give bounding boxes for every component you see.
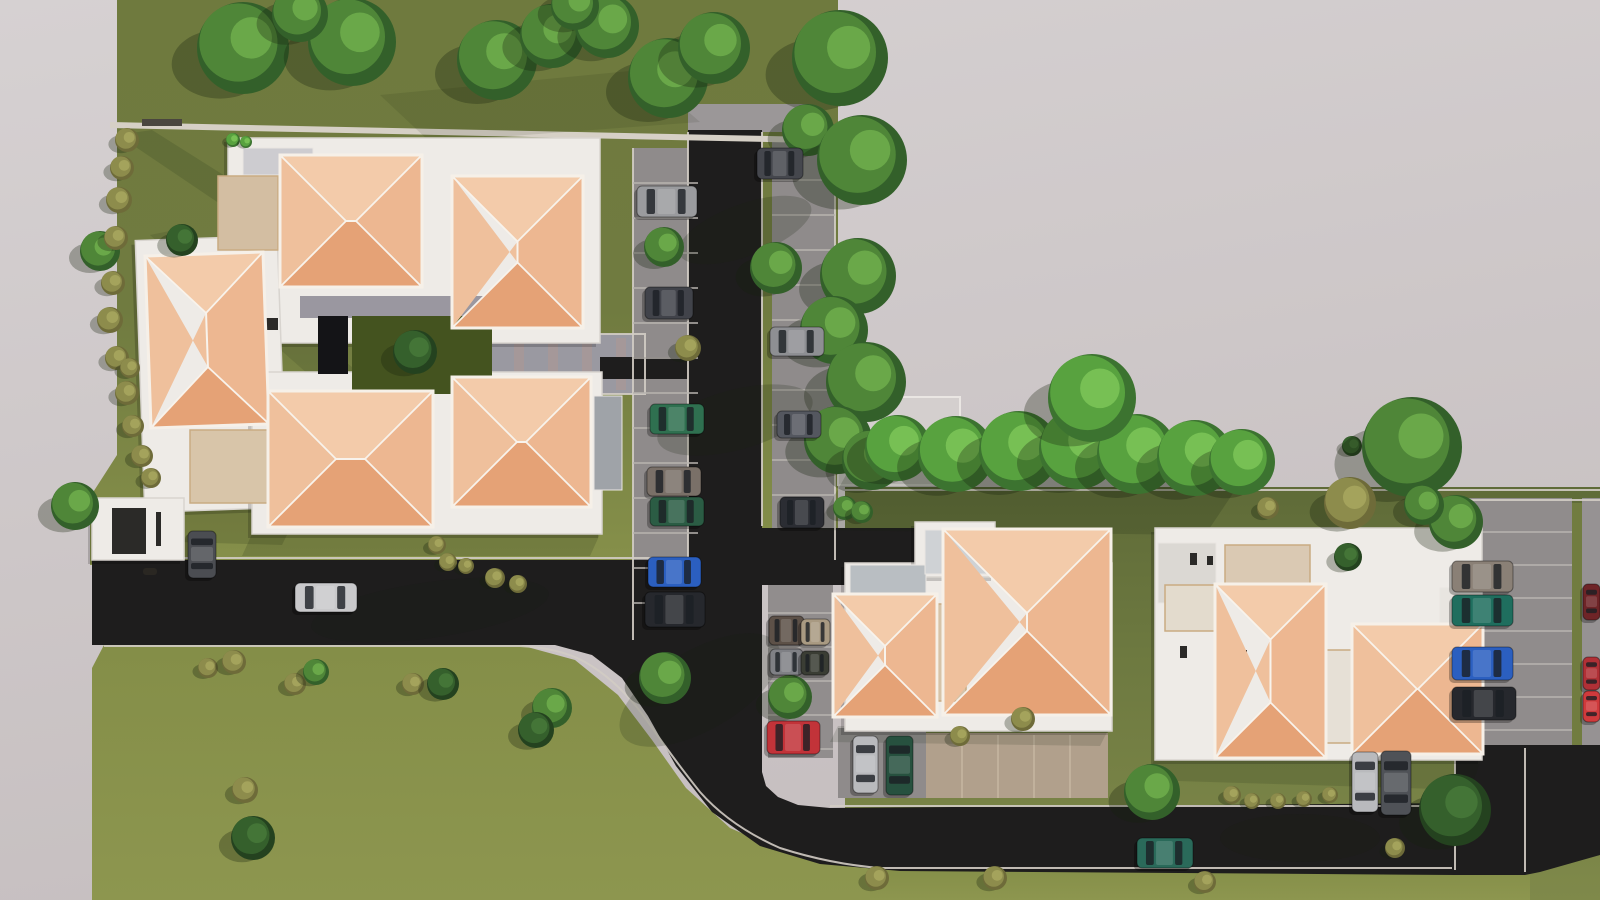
site-plan-render (0, 0, 1600, 900)
car-roof (665, 470, 681, 493)
windshield (1586, 696, 1597, 700)
canopy-highlight (435, 539, 443, 547)
canopy-highlight (598, 5, 627, 34)
car-roof (1586, 668, 1597, 678)
windshield (653, 290, 660, 316)
windshield (775, 652, 780, 672)
canopy-highlight (547, 695, 565, 713)
building-opening (112, 508, 146, 554)
canopy-highlight (704, 24, 736, 56)
car (642, 592, 705, 630)
car-roof (781, 652, 791, 672)
canopy-highlight (516, 578, 524, 586)
rear-window (1493, 598, 1501, 623)
building-opening (1207, 556, 1213, 565)
canopy-highlight (114, 350, 125, 361)
canopy-highlight (1233, 440, 1263, 470)
canopy-highlight (113, 230, 124, 241)
car (798, 619, 830, 648)
small-animal (143, 568, 157, 575)
rear-window (803, 724, 810, 751)
stairwell (318, 316, 348, 374)
canopy-highlight (130, 419, 140, 429)
windshield (305, 586, 314, 609)
rear-window (1493, 650, 1501, 677)
canopy-highlight (439, 673, 453, 687)
canopy-highlight (127, 361, 136, 370)
canopy-highlight (850, 130, 891, 171)
car (1449, 595, 1513, 629)
canopy-highlight (69, 490, 91, 512)
windshield (1462, 598, 1471, 623)
southeast-corner (1525, 745, 1600, 875)
car (1580, 657, 1600, 693)
car (754, 148, 803, 182)
windshield (659, 407, 667, 431)
canopy-highlight (874, 870, 885, 881)
windshield (656, 560, 663, 584)
canopy-highlight (827, 26, 870, 69)
rear-window (856, 775, 875, 782)
car (798, 651, 829, 678)
windshield (787, 500, 793, 525)
rear-window (684, 470, 691, 493)
car-roof (316, 586, 335, 609)
rear-window (687, 500, 694, 523)
car (1349, 752, 1378, 815)
terrace (190, 430, 270, 503)
canopy-highlight (446, 556, 454, 564)
rear-window (792, 652, 796, 672)
windshield (1586, 590, 1597, 595)
car-roof (1156, 841, 1173, 865)
canopy-highlight (801, 113, 824, 136)
canopy-highlight (848, 251, 882, 285)
canopy-highlight (859, 505, 869, 515)
terrace (218, 176, 278, 250)
canopy-highlight (231, 654, 242, 665)
windshield (1384, 761, 1408, 770)
car (1580, 691, 1600, 725)
walkway-gate (142, 119, 182, 126)
roof-se (452, 377, 591, 507)
windshield (856, 745, 875, 753)
rear-window (810, 500, 816, 525)
canopy-highlight (1250, 796, 1257, 803)
car (764, 721, 820, 757)
car-roof (668, 407, 684, 431)
canopy-highlight (1144, 773, 1169, 798)
windshield (806, 622, 810, 642)
rear-window (1586, 712, 1597, 716)
rear-window (1355, 793, 1375, 801)
canopy-highlight (231, 135, 237, 141)
rear-window (678, 189, 686, 214)
windshield (889, 745, 910, 753)
windshield (1462, 650, 1471, 677)
car-roof (1474, 690, 1493, 717)
car-roof (665, 595, 683, 624)
canopy-highlight (124, 385, 135, 396)
windshield (764, 151, 770, 176)
car-roof (1384, 773, 1408, 792)
windshield (659, 500, 667, 523)
roof-s (268, 391, 433, 527)
car-roof (1355, 772, 1375, 790)
canopy-highlight (139, 449, 149, 459)
canopy-highlight (825, 307, 856, 338)
rendered-site-plan-screenshot (0, 0, 1600, 900)
windshield (647, 189, 655, 214)
canopy-highlight (178, 229, 192, 243)
canopy-highlight (312, 663, 324, 675)
rear-window (820, 654, 824, 672)
car (850, 736, 878, 796)
canopy-highlight (119, 160, 130, 171)
canopy-highlight (1328, 790, 1335, 797)
canopy-highlight (410, 677, 420, 687)
canopy-highlight (124, 132, 135, 143)
car-roof (773, 151, 787, 176)
windshield (775, 724, 782, 751)
car-roof (856, 755, 875, 772)
car-roof (1473, 564, 1491, 589)
rear-window (687, 407, 694, 431)
rear-window (191, 563, 213, 569)
car-roof (1473, 598, 1491, 623)
canopy-highlight (658, 661, 681, 684)
canopy-highlight (855, 355, 891, 391)
rear-window (1175, 841, 1182, 865)
car (185, 531, 216, 581)
windshield (1462, 690, 1471, 717)
canopy-highlight (340, 13, 380, 53)
car-roof (795, 500, 808, 525)
canopy-highlight (205, 661, 214, 670)
car-roof (1473, 650, 1491, 677)
rear-window (1493, 564, 1501, 589)
canopy-highlight (659, 234, 677, 252)
canopy-highlight (409, 337, 429, 357)
rear-window (686, 595, 694, 624)
car (883, 736, 913, 798)
car (634, 186, 697, 220)
car-roof (788, 330, 804, 353)
car-roof (781, 619, 792, 642)
car (774, 411, 821, 441)
car (767, 327, 824, 359)
building-opening (1180, 646, 1187, 658)
car-roof (1586, 596, 1597, 607)
canopy-highlight (992, 870, 1003, 881)
canopy-highlight (684, 339, 696, 351)
canopy-highlight (1445, 786, 1477, 818)
canopy-highlight (148, 471, 157, 480)
rear-window (1496, 690, 1504, 717)
canopy-highlight (769, 251, 792, 274)
canopy-highlight (957, 729, 966, 738)
windshield (1146, 841, 1154, 865)
rear-window (788, 151, 794, 176)
car (292, 583, 357, 615)
car (642, 287, 693, 322)
rear-window (1586, 679, 1597, 683)
canopy-highlight (1202, 875, 1212, 885)
car (647, 404, 704, 437)
rear-window (821, 622, 825, 642)
rear-window (1384, 795, 1408, 803)
canopy-highlight (1449, 504, 1473, 528)
car (644, 467, 701, 499)
rear-window (684, 560, 691, 584)
flat-roof (594, 396, 622, 490)
canopy-highlight (241, 781, 253, 793)
windshield (805, 654, 809, 672)
windshield (1586, 662, 1597, 667)
car (1580, 584, 1600, 623)
roof-nw (280, 155, 422, 287)
canopy-highlight (1302, 794, 1309, 801)
car-roof (792, 414, 805, 435)
canopy-highlight (1344, 548, 1357, 561)
car-roof (666, 560, 682, 584)
car-roof (668, 500, 684, 523)
canopy-highlight (1230, 789, 1238, 797)
car (1449, 687, 1516, 723)
canopy-highlight (1080, 369, 1120, 409)
car-roof (657, 189, 675, 214)
rear-window (678, 290, 684, 316)
canopy-highlight (784, 682, 804, 702)
car-roof (889, 756, 910, 774)
windshield (655, 595, 663, 624)
canopy-highlight (1276, 796, 1283, 803)
canopy-highlight (110, 275, 121, 286)
windshield (1355, 762, 1375, 770)
cast-shadow (1220, 814, 1380, 862)
canopy-highlight (115, 191, 127, 203)
car (1134, 838, 1193, 871)
windshield (1462, 564, 1471, 589)
car-roof (1586, 702, 1597, 711)
car (645, 557, 701, 590)
car (1378, 751, 1411, 818)
canopy-highlight (247, 823, 267, 843)
canopy-highlight (464, 561, 471, 568)
rear-window (807, 414, 813, 435)
canopy-highlight (106, 311, 118, 323)
canopy-highlight (1020, 711, 1031, 722)
terrace (1225, 545, 1310, 587)
canopy-highlight (492, 571, 501, 580)
car (1449, 647, 1513, 683)
building-opening (156, 512, 161, 546)
car (647, 497, 704, 529)
windshield (784, 414, 790, 435)
car-roof (191, 547, 213, 561)
windshield (775, 619, 780, 642)
canopy-highlight (1419, 492, 1437, 510)
car (777, 497, 824, 531)
rear-window (889, 776, 910, 784)
canopy-highlight (244, 138, 249, 143)
building-opening (1190, 553, 1197, 565)
terrace (1165, 585, 1215, 631)
car (767, 649, 803, 678)
rear-window (807, 330, 814, 353)
car-roof (811, 622, 820, 642)
windshield (779, 330, 787, 353)
canopy-highlight (531, 718, 547, 734)
rear-window (337, 586, 345, 609)
canopy-highlight (1265, 501, 1275, 511)
windshield (656, 470, 664, 493)
rear-window (793, 619, 798, 642)
car-roof (661, 290, 675, 316)
car (1449, 561, 1513, 595)
canopy-highlight (1392, 841, 1401, 850)
canopy-highlight (1399, 414, 1444, 459)
windshield (191, 539, 213, 546)
canopy-highlight (1343, 486, 1366, 509)
car-roof (811, 654, 819, 672)
rear-window (1586, 608, 1597, 613)
car-roof (785, 724, 801, 751)
